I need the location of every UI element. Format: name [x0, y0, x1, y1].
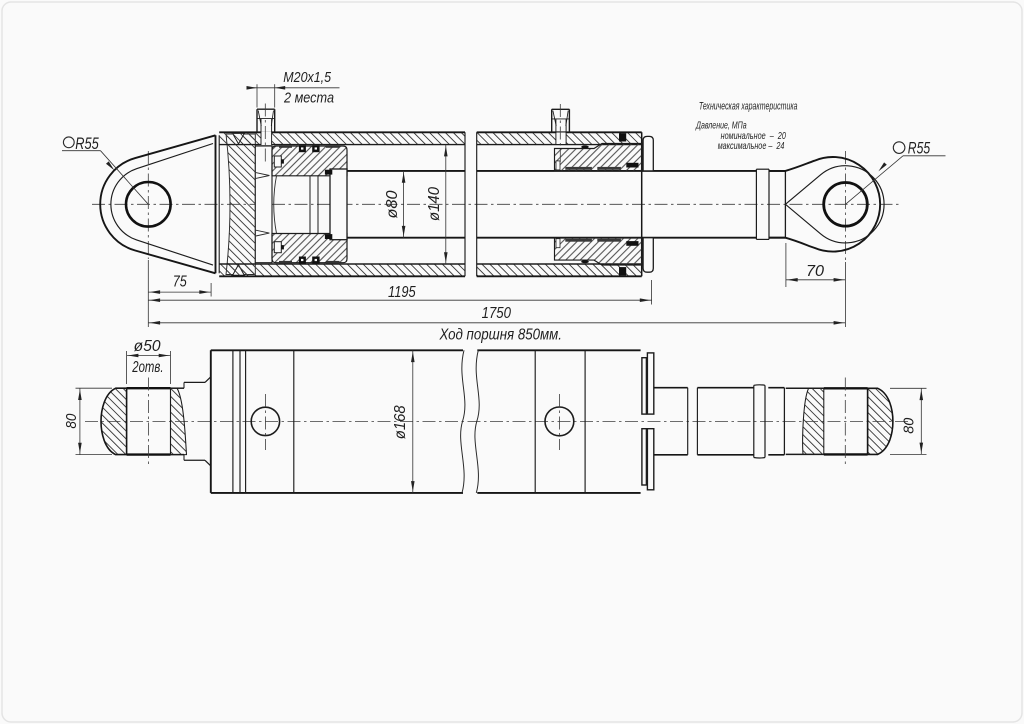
svg-text:Ход поршня 850мм.: Ход поршня 850мм.	[439, 327, 562, 344]
svg-text:80: 80	[63, 413, 80, 429]
svg-text:максимальное – 24: максимальное – 24	[718, 140, 785, 152]
svg-text:R55: R55	[75, 135, 99, 153]
svg-text:ø50: ø50	[134, 338, 161, 355]
svg-text:75: 75	[173, 274, 187, 291]
svg-text:2 места: 2 места	[283, 91, 334, 107]
svg-text:ø168: ø168	[392, 405, 409, 439]
svg-text:1750: 1750	[482, 305, 511, 322]
svg-text:80: 80	[901, 417, 918, 434]
svg-text:R55: R55	[908, 140, 931, 158]
svg-text:70: 70	[806, 263, 824, 280]
svg-text:1195: 1195	[388, 284, 416, 301]
svg-text:2отв.: 2отв.	[132, 359, 164, 376]
svg-text:Техническая характеристика: Техническая характеристика	[699, 100, 798, 112]
svg-text:ø80: ø80	[384, 190, 401, 218]
svg-text:М20х1,5: М20х1,5	[283, 70, 331, 86]
svg-text:ø140: ø140	[426, 187, 443, 221]
